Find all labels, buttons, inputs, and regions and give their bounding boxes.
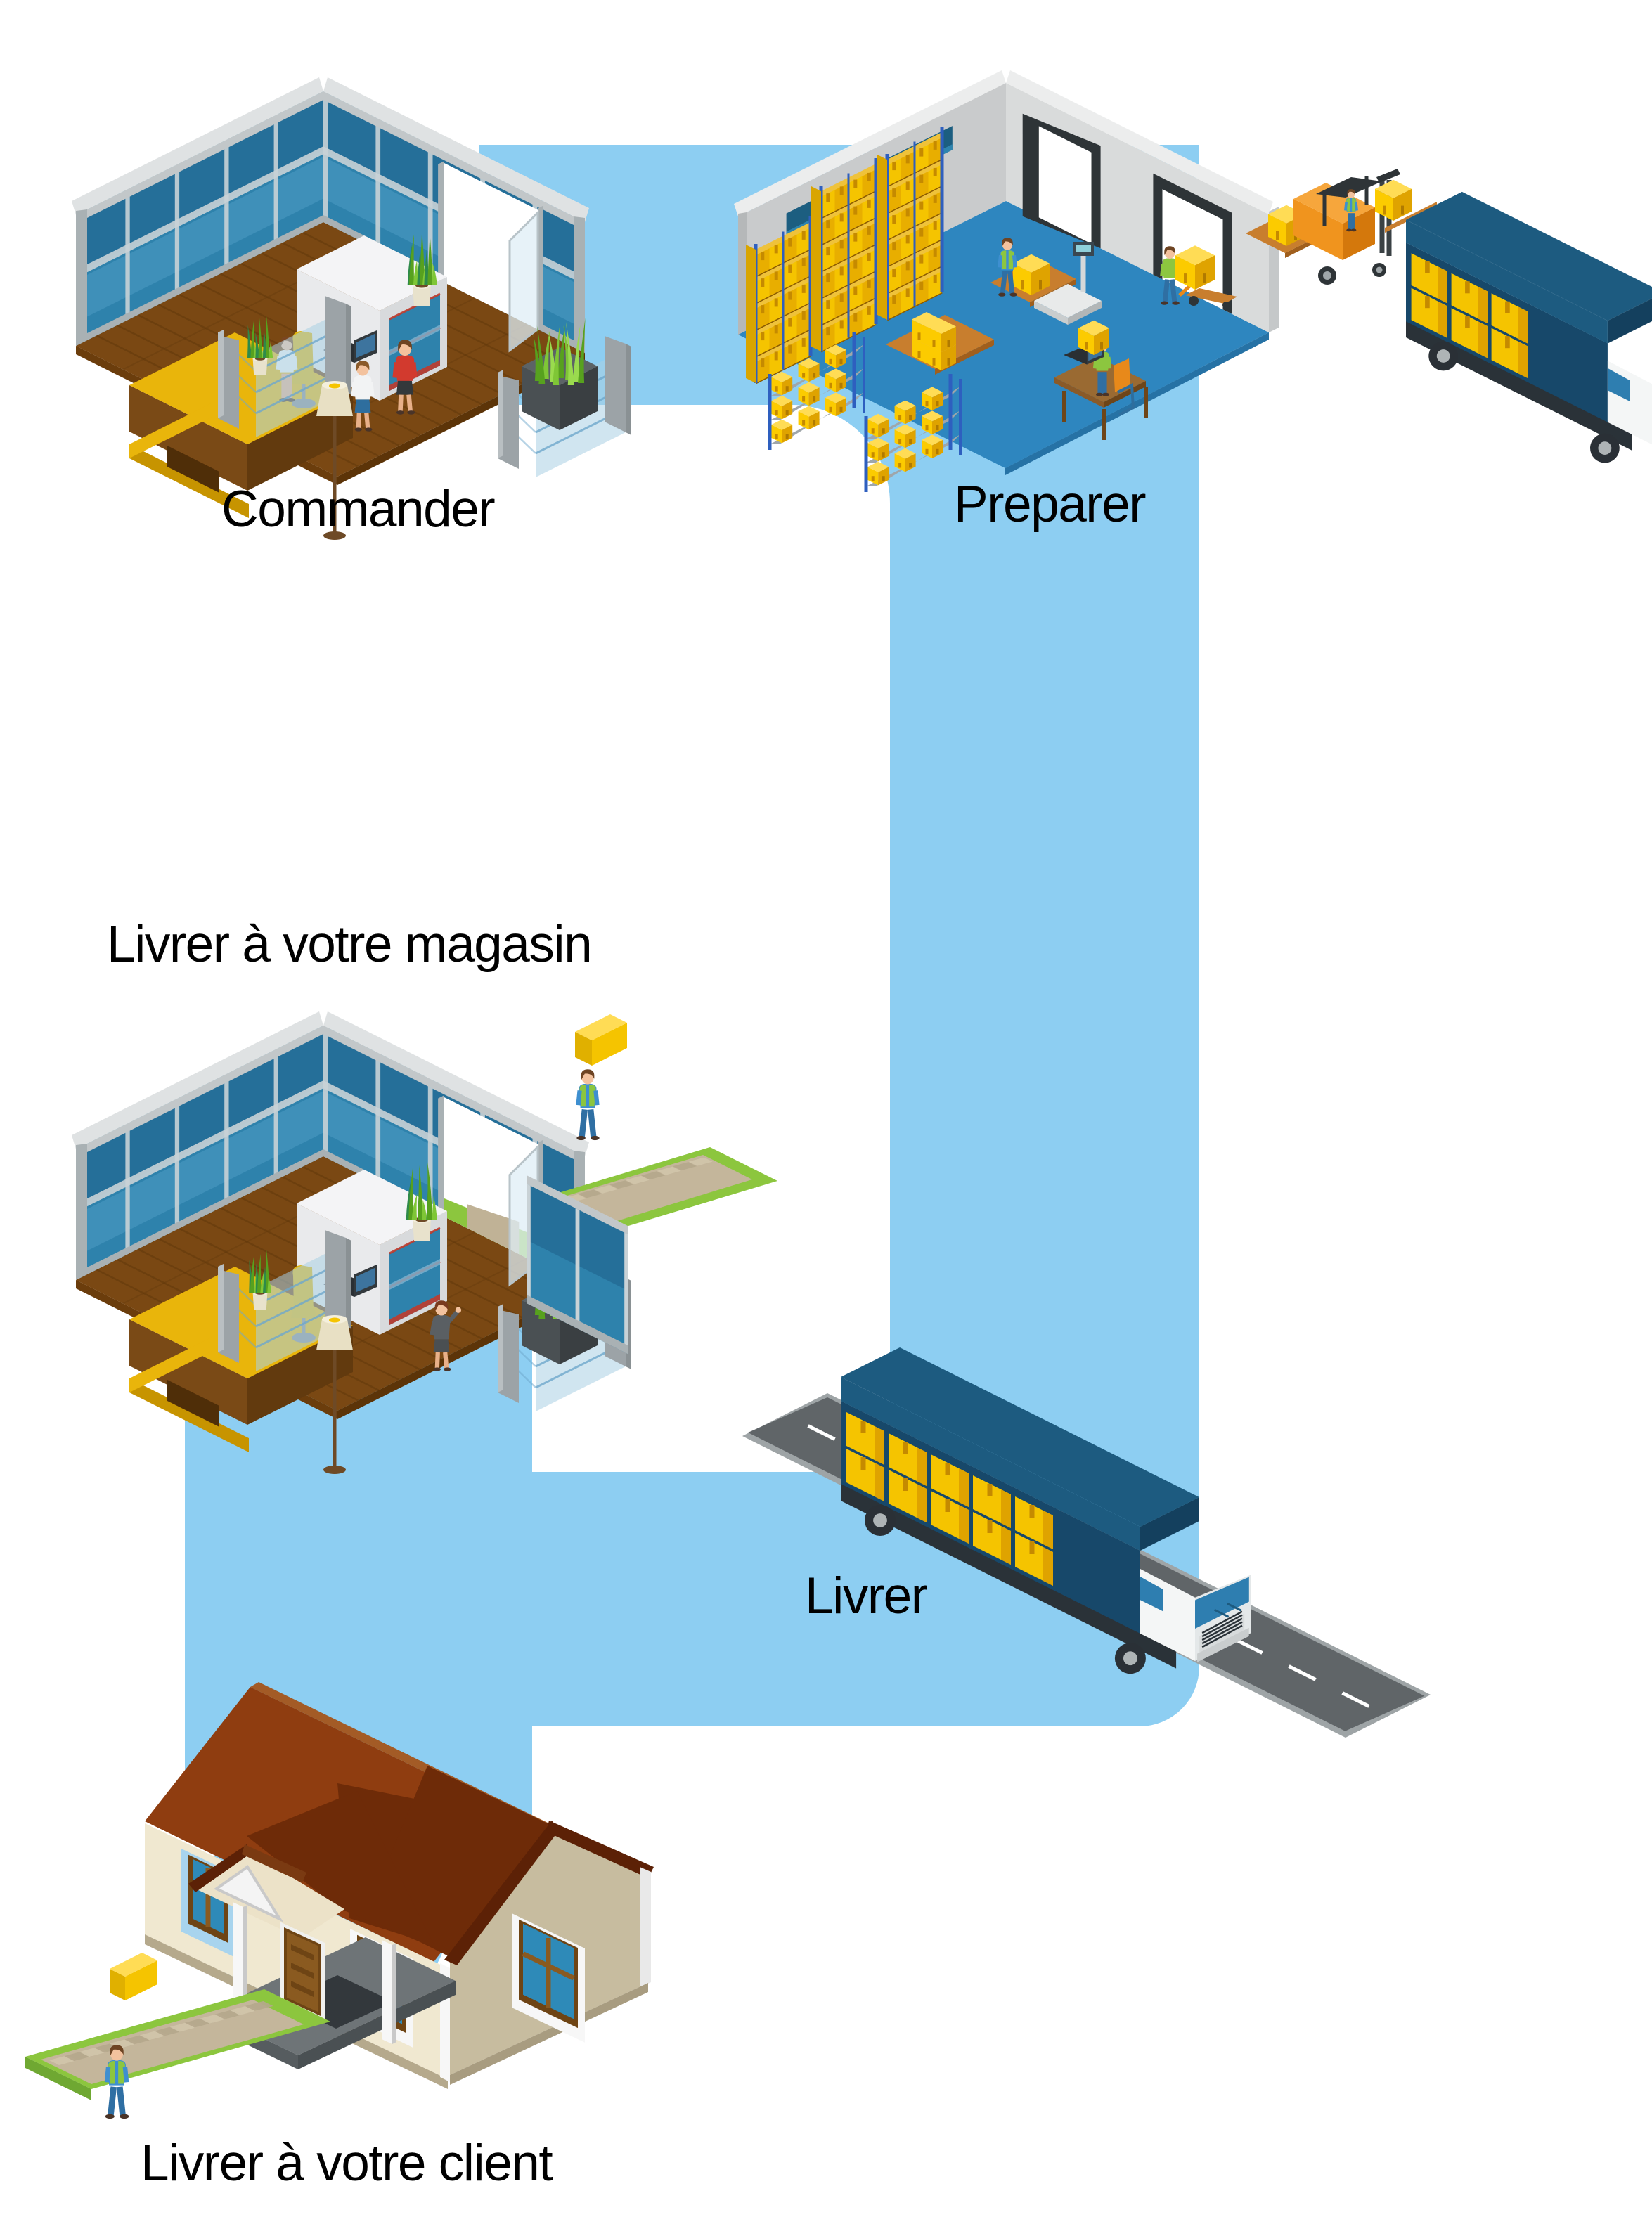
- svg-text:Livrer: Livrer: [805, 1567, 928, 1624]
- svg-text:Livrer à votre magasin: Livrer à votre magasin: [107, 916, 591, 973]
- svg-text:Preparer: Preparer: [954, 476, 1146, 533]
- svg-text:Commander: Commander: [221, 481, 495, 538]
- svg-text:Livrer à votre client: Livrer à votre client: [141, 2135, 553, 2192]
